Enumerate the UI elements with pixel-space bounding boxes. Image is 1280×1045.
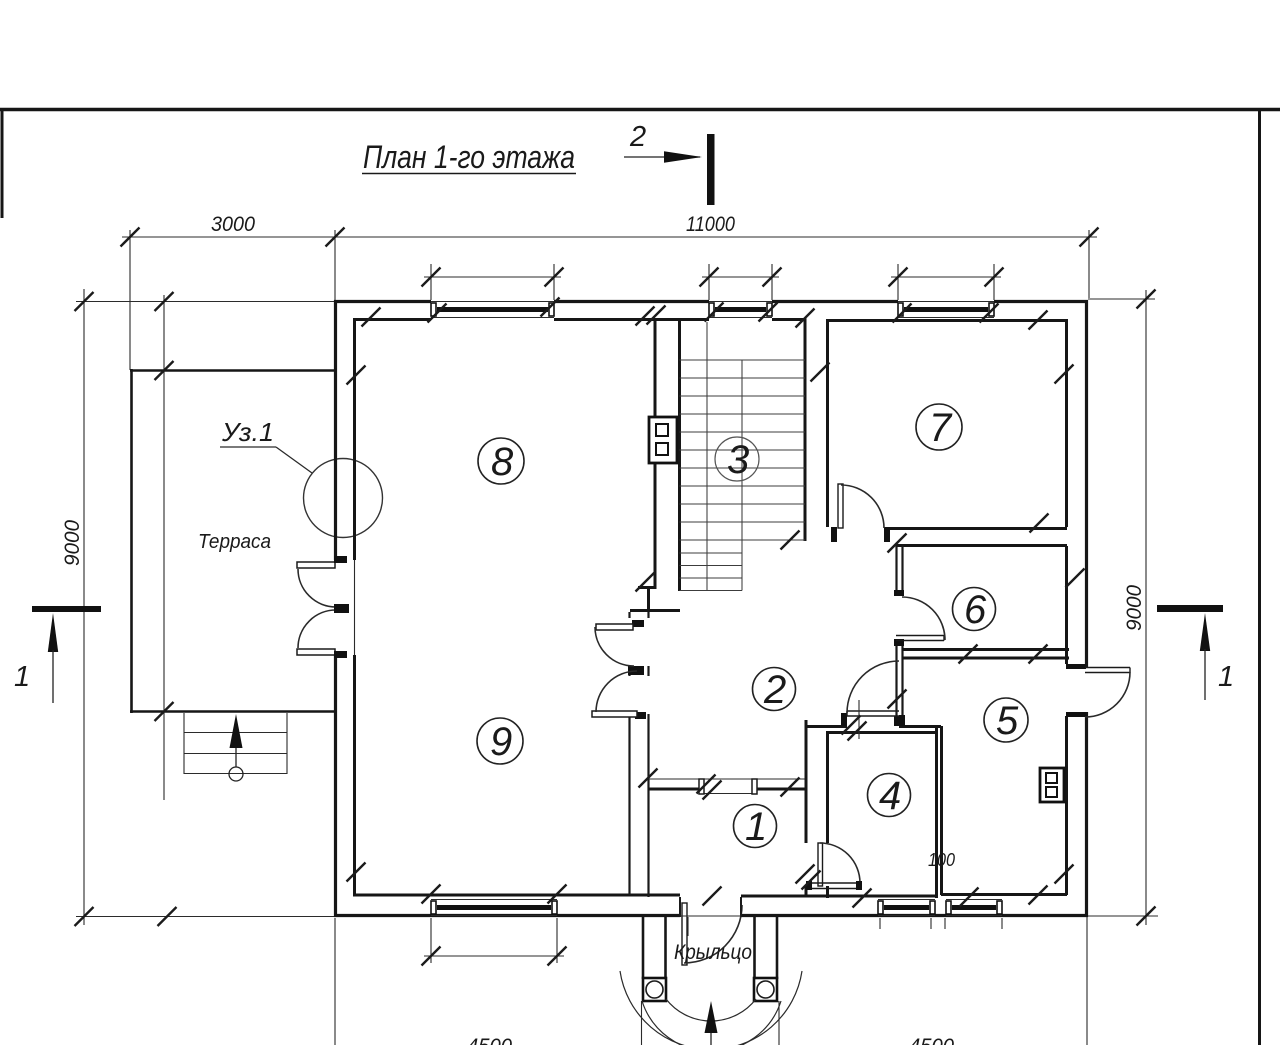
svg-text:2: 2 (629, 121, 646, 153)
svg-text:9000: 9000 (61, 520, 84, 566)
svg-text:11000: 11000 (686, 213, 735, 236)
svg-text:4: 4 (879, 774, 901, 818)
svg-text:100: 100 (928, 850, 955, 870)
svg-text:1: 1 (745, 805, 767, 849)
svg-text:1: 1 (1218, 661, 1234, 693)
svg-text:Уз.1: Уз.1 (221, 417, 274, 447)
svg-text:8: 8 (491, 440, 514, 484)
svg-text:1: 1 (14, 661, 30, 693)
svg-text:5: 5 (996, 699, 1019, 743)
svg-text:Терраса: Терраса (198, 531, 271, 553)
svg-text:4500: 4500 (467, 1035, 512, 1045)
svg-text:План 1-го этажа: План 1-го этажа (363, 139, 575, 175)
svg-text:3: 3 (727, 438, 749, 482)
svg-text:2: 2 (763, 668, 786, 712)
svg-text:6: 6 (964, 588, 987, 632)
svg-text:9000: 9000 (1123, 585, 1146, 631)
svg-text:9: 9 (490, 720, 512, 764)
svg-text:7: 7 (929, 406, 953, 450)
svg-text:Крыльцо: Крыльцо (674, 941, 752, 964)
svg-text:3000: 3000 (211, 213, 255, 236)
svg-text:4500: 4500 (909, 1035, 954, 1045)
